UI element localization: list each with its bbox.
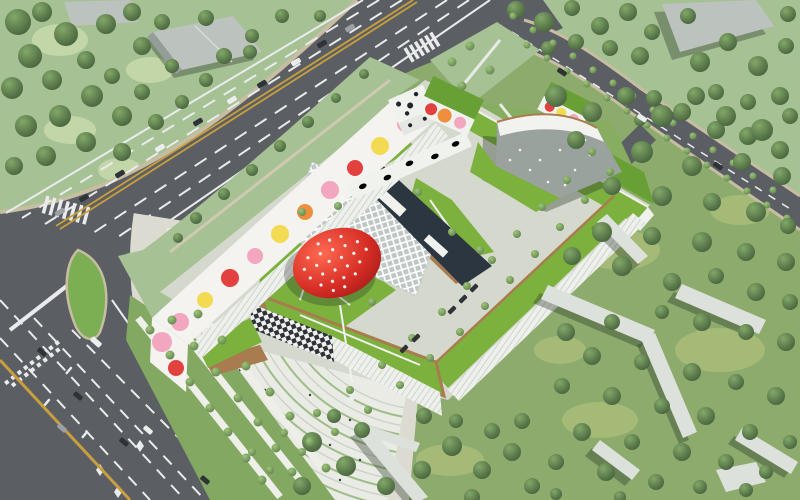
street-tree [556,223,564,231]
speckle [547,181,550,184]
speckle [509,159,512,162]
tree [708,268,724,284]
street-tree [234,394,243,403]
street-tree [322,464,331,473]
street-tree [510,13,517,20]
tree [619,3,637,21]
tree [751,119,773,141]
street-tree [212,368,221,377]
street-tree [704,162,711,169]
tree [148,114,164,130]
street-tree [563,176,571,184]
street-tree [544,55,551,62]
street-tree [346,386,354,394]
tree [767,387,785,405]
person [349,419,351,421]
ribbon-blob [247,248,263,264]
tree [123,3,141,21]
tree [15,115,37,137]
tree [644,24,660,40]
tree [783,435,797,449]
tree [652,186,672,206]
tree [413,461,431,479]
tree [692,232,712,252]
tree [336,456,356,476]
tree [747,283,765,301]
tree [36,146,56,166]
tree [703,193,721,211]
tree [746,202,766,222]
street-tree [456,328,464,336]
tree [32,2,52,22]
ribbon-blob [221,269,239,287]
tree [246,164,258,176]
street-tree [242,362,251,371]
street-tree [524,42,531,49]
tree [773,167,791,185]
tree [759,465,773,479]
tree [612,256,632,276]
street-tree [190,342,199,351]
tree [104,68,120,84]
tree [582,102,602,122]
tree [514,413,530,429]
tree [76,132,96,152]
tree [416,408,432,424]
street-tree [690,133,697,140]
tree [199,73,213,87]
street-tree [476,246,484,254]
street-tree [298,448,306,456]
rendering-canvas [0,0,800,500]
tree [113,143,131,161]
speckle [529,169,532,172]
street-tree [466,42,475,51]
tree [782,108,798,124]
street-tree [194,310,203,319]
tree [133,37,151,55]
street-tree [506,276,514,284]
tree [624,434,640,450]
tree [591,17,609,35]
tree [728,374,744,390]
street-tree [606,168,614,176]
tree [54,22,78,46]
aerial-rendering [0,0,800,500]
tree [617,87,635,105]
speckle [564,184,567,187]
tree [719,33,737,51]
street-tree [224,428,233,437]
tree [49,105,71,127]
tree [718,454,734,470]
tree [654,398,670,414]
street-tree [368,298,376,306]
tree [777,253,795,271]
tree [592,222,612,242]
tree [564,0,580,16]
tree [716,106,736,126]
tree [646,90,662,106]
street-tree [280,429,288,437]
street-tree [272,444,281,453]
street-tree [186,378,195,387]
ribbon-blob [152,332,172,352]
street-tree [750,173,757,180]
street-tree [486,66,495,75]
street-tree [313,409,321,417]
tree [1,77,23,99]
tree [682,156,702,176]
tree [778,38,794,54]
tree [554,378,570,394]
street-tree [664,135,671,142]
tree [771,87,789,105]
street-tree [266,388,275,397]
tree [81,85,103,107]
street-tree [438,308,446,316]
tree [302,116,314,128]
tree [780,218,796,234]
street-tree [684,148,691,155]
tree [96,14,116,34]
tree [740,94,756,110]
tree [651,105,673,127]
tree [274,140,286,152]
street-tree [396,381,404,389]
street-tree [206,404,215,413]
tree [173,233,183,243]
tree [568,34,584,50]
tree [737,243,755,261]
ribbon-blob [168,360,184,376]
street-tree [218,336,227,345]
speckle [519,149,522,152]
person [359,459,361,461]
tree [583,347,601,365]
tree [442,436,462,456]
tree [680,8,696,24]
street-tree [610,80,617,87]
tree [154,14,170,30]
ribbon-blob [321,181,339,199]
tree [293,477,311,495]
tree [631,47,649,65]
street-tree [538,203,546,211]
tree [631,141,653,163]
tree [563,247,581,265]
street-tree [258,476,267,485]
lawn-patch [534,336,586,364]
tree [567,131,585,149]
ribbon-blob [271,225,289,243]
tree [331,93,341,103]
street-tree [286,412,295,421]
tree [782,294,798,310]
tree [690,52,710,72]
tree [134,84,150,100]
street-tree [288,468,297,477]
ribbon-blob [197,292,213,308]
street-tree [488,256,496,264]
tree [673,443,691,461]
tree [604,314,620,330]
tree [648,474,664,490]
tree [733,153,751,171]
street-tree [463,282,471,290]
tree [548,454,564,470]
street-tree [426,354,434,362]
tree [687,87,705,105]
tree [18,44,42,68]
tree [484,423,500,439]
tree [557,323,575,341]
street-tree [254,418,263,427]
tree [359,69,369,79]
street-tree [146,326,155,335]
tree [534,12,554,32]
tree [377,477,395,495]
street-tree [604,95,611,102]
street-tree [378,361,386,369]
street-tree [298,208,306,216]
street-tree [248,448,256,456]
tree [190,212,202,224]
tree [473,461,491,479]
street-tree [588,148,596,156]
tree [573,423,591,441]
tree [673,103,691,121]
street-tree [770,187,777,194]
tree [314,10,326,22]
speckle [559,149,562,152]
tree [597,463,615,481]
street-tree [266,466,274,474]
speckle [574,169,577,172]
tree [112,106,132,126]
street-tree [624,108,631,115]
person [339,479,341,481]
tree [697,407,715,425]
tree [175,95,189,109]
street-tree [724,175,731,182]
street-tree [590,67,597,74]
tree [42,70,62,90]
tree [655,305,669,319]
street-tree [168,316,177,325]
street-tree [581,196,589,204]
tree [245,29,259,43]
tree [742,424,758,440]
tree [634,354,650,370]
tree [780,6,796,22]
person [329,444,331,446]
street-tree [481,302,489,310]
person [309,394,311,396]
street-tree [448,228,456,236]
tree [663,273,681,291]
tree [5,157,23,175]
street-tree [331,428,339,436]
tree [748,56,768,76]
tree [602,40,618,56]
street-tree [448,58,457,67]
speckle [539,159,542,162]
ribbon-blob [371,137,389,155]
street-tree [710,147,717,154]
tree [354,422,370,438]
street-tree [364,406,372,414]
ribbon-blob [347,160,363,176]
tree [693,480,707,494]
tree [275,9,289,23]
tree [5,9,31,35]
tree [603,177,621,195]
tree [693,313,711,331]
tree [198,10,214,26]
tree [643,227,661,245]
tree [771,141,789,159]
tree [683,363,701,381]
street-tree [414,188,422,196]
street-tree [334,202,342,210]
tree [503,443,521,461]
tree [708,84,724,100]
tree [449,414,463,428]
tree [216,48,232,64]
street-tree [584,81,591,88]
street-tree [550,40,557,47]
tree [603,387,621,405]
tree [327,409,341,423]
tree [165,59,179,73]
street-tree [744,188,751,195]
tree [738,324,754,340]
tree [218,188,230,200]
street-tree [166,351,175,360]
street-tree [242,454,251,463]
tree [77,51,95,69]
street-tree [570,53,577,60]
street-tree [531,250,539,258]
street-tree [530,27,537,34]
tree [739,483,753,497]
tree [777,333,795,351]
tree [243,45,257,59]
tree [550,488,562,500]
tree [524,478,540,494]
street-tree [513,230,521,238]
tree [545,85,567,107]
street-tree [458,82,467,91]
street-tree [306,438,315,447]
